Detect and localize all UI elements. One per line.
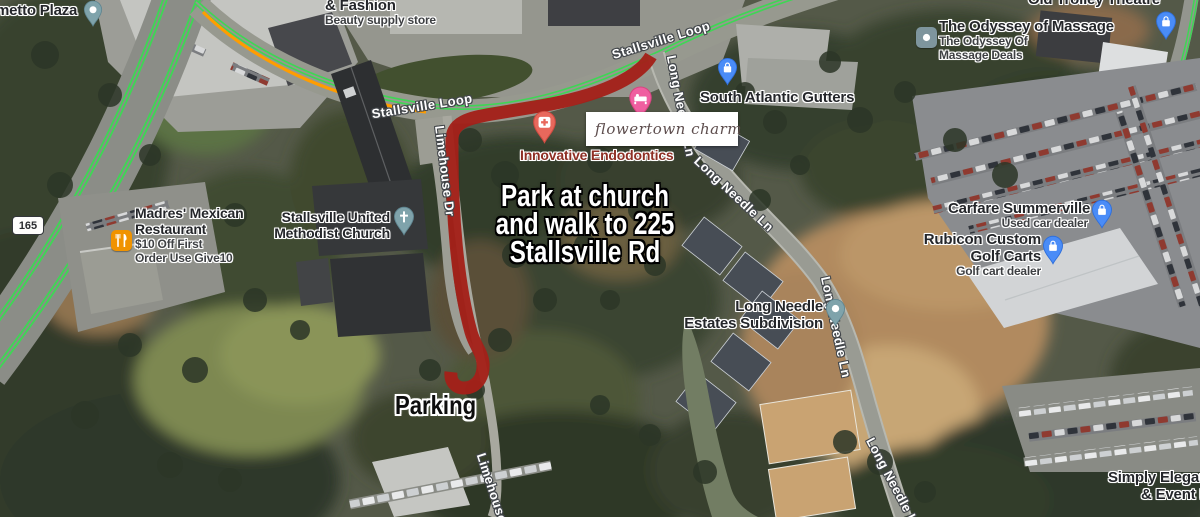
madres-restaurant-icon[interactable] — [111, 230, 132, 251]
satellite-map[interactable]: Stallsville Loop Stallsville Loop Long N… — [0, 0, 1200, 517]
place-label-long-needle-estates[interactable]: Long Needle Estates Subdivision — [670, 298, 823, 332]
place-label-innovative-endodontics[interactable]: Innovative Endodontics — [520, 148, 674, 164]
place-name-line1: Simply Elegant — [1108, 469, 1200, 486]
place-label-carfare-summerville[interactable]: Carfare Summerville Used car dealer — [948, 200, 1088, 231]
place-name-line2: Golf Carts — [970, 248, 1041, 265]
route-shield-165: 165 — [12, 216, 44, 235]
place-subtitle-line1: $10 Off First — [135, 238, 244, 252]
place-pin-innovative-endodontics[interactable] — [532, 110, 557, 144]
place-name-line2: Methodist Church — [274, 225, 390, 241]
place-pin-south-atlantic-gutters[interactable] — [717, 57, 738, 86]
place-pin-long-needle-estates[interactable] — [825, 298, 846, 327]
place-name: Old Trolley Theatre — [1028, 0, 1160, 8]
place-subtitle-line2: Massage Deals — [939, 49, 1114, 63]
shopping-bag-pin-icon — [1042, 235, 1064, 265]
map-pin-dot-icon — [825, 298, 846, 327]
place-label-odyssey-massage[interactable]: The Odyssey of Massage The Odyssey Of Ma… — [939, 18, 1114, 62]
health-cross-pin-icon — [532, 110, 557, 144]
place-pin-rubicon-golf-carts[interactable] — [1042, 235, 1064, 265]
place-subtitle-line1: The Odyssey Of — [939, 35, 1114, 49]
place-name-line1: Stallsville United — [282, 209, 390, 225]
place-name: Carfare Summerville — [948, 200, 1090, 217]
logo-text: flowertown charm — [595, 120, 742, 138]
place-label-simply-elegant[interactable]: Simply Elegant & Event R — [1108, 469, 1200, 503]
shopping-bag-pin-icon — [1155, 11, 1177, 40]
place-label-palmetto-plaza[interactable]: metto Plaza — [0, 2, 77, 19]
odyssey-massage-icon[interactable] — [916, 27, 937, 48]
place-subtitle: Used car dealer — [948, 217, 1088, 231]
flowertown-charm-logo: flowertown charm — [586, 112, 738, 146]
place-pin-stallsville-church[interactable] — [393, 206, 415, 236]
place-pin-carfare-summerville[interactable] — [1091, 199, 1113, 229]
place-name-line1: Madres' Mexican — [135, 205, 244, 221]
place-name-line2: Estates Subdivision — [684, 315, 823, 332]
place-name: The Odyssey of Massage — [939, 18, 1114, 35]
parking-text: Parking — [395, 390, 476, 421]
parking-label: Parking — [395, 390, 476, 420]
place-name: Innovative Endodontics — [520, 147, 674, 163]
restaurant-utensils-icon — [111, 230, 132, 251]
park-instructions-line3: Stallsville Rd — [510, 234, 661, 269]
route-shield-number: 165 — [19, 220, 37, 232]
place-name: & Fashion — [325, 0, 396, 14]
park-instructions-text: Park at church and walk to 225 Stallsvil… — [477, 182, 692, 266]
place-name: South Atlantic Gutters — [700, 89, 854, 106]
map-pin-dot-icon — [83, 0, 103, 27]
place-label-madres-mexican-restaurant[interactable]: Madres' Mexican Restaurant $10 Off First… — [135, 206, 244, 265]
place-name-line2: & Event R — [1108, 486, 1200, 503]
place-name-line1: Long Needle — [735, 298, 823, 315]
shopping-bag-pin-icon — [1091, 199, 1113, 229]
place-subtitle-line2: Order Use Give10 — [135, 252, 244, 266]
place-name-line2: Restaurant — [135, 221, 206, 237]
place-subtitle: Beauty supply store — [325, 14, 436, 28]
place-name-line1: Rubicon Custom — [924, 231, 1041, 248]
church-cross-pin-icon — [393, 206, 415, 236]
place-label-south-atlantic-gutters[interactable]: South Atlantic Gutters — [700, 89, 854, 106]
place-subtitle: Golf cart dealer — [915, 265, 1041, 279]
place-label-old-trolley-theatre[interactable]: Old Trolley Theatre — [1028, 0, 1160, 8]
place-label-stallsville-church[interactable]: Stallsville United Methodist Church — [252, 210, 390, 242]
place-name: metto Plaza — [0, 2, 77, 19]
place-pin-palmetto-plaza[interactable] — [83, 0, 103, 27]
place-label-fashion-store[interactable]: & Fashion Beauty supply store — [325, 0, 436, 28]
shopping-bag-pin-icon — [717, 57, 738, 86]
place-pin-old-trolley-area[interactable] — [1155, 11, 1177, 40]
place-label-rubicon-golf-carts[interactable]: Rubicon Custom Golf Carts Golf cart deal… — [915, 231, 1041, 279]
dot-icon — [916, 27, 937, 48]
